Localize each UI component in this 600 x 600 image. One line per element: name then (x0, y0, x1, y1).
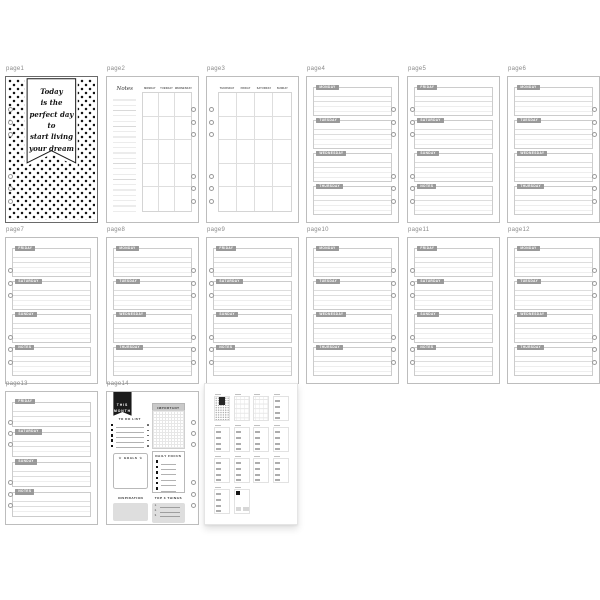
mini-page-label (274, 456, 280, 457)
week-section: TUESDAY (313, 118, 391, 149)
end-dot (147, 440, 149, 442)
grid-cell (255, 117, 273, 140)
mini-page-thumbnail (253, 427, 269, 452)
day-tab: THURSDAY (517, 184, 544, 189)
ruled-lines (414, 153, 492, 181)
grid-cell (237, 187, 255, 210)
page2-sheet: NotesMONDAYTUESDAYWEDNESDAY (106, 76, 199, 223)
binder-hole (592, 268, 597, 273)
grid-cell (175, 117, 191, 140)
day-tab: SUNDAY (417, 312, 439, 317)
goals-label: GOALS (124, 456, 138, 460)
page-label: page8 (107, 227, 125, 233)
page5-sheet: FRIDAYSATURDAYSUNDAYNOTES (407, 76, 500, 223)
mini-day-tab (216, 462, 221, 464)
binder-hole (8, 360, 13, 365)
grid-cell (219, 140, 237, 163)
mini-page-label (235, 487, 241, 488)
binder-hole (191, 442, 196, 447)
mini-day-tab (216, 493, 221, 495)
binder-hole (592, 335, 597, 340)
week-section: WEDNESDAY (313, 312, 391, 343)
mini-month-banner (236, 491, 240, 495)
ruled-lines (113, 95, 136, 211)
day-tab: SATURDAY (216, 279, 242, 284)
day-tab: NOTES (417, 345, 436, 350)
mini-day-tab (255, 448, 260, 450)
grid-cell (143, 93, 159, 116)
day-tab: WEDNESDAY (517, 312, 547, 317)
mini-day-tab (275, 462, 280, 464)
mini-day-tab (236, 437, 241, 439)
week-section: NOTES (12, 345, 90, 376)
ruled-lines (414, 347, 492, 375)
week-section: SATURDAY (414, 118, 492, 149)
binder-hole (592, 347, 597, 352)
mini-page-thumbnail (234, 489, 250, 514)
week-section: WEDNESDAY (514, 312, 592, 343)
week-sections: MONDAYTUESDAYWEDNESDAYTHURSDAY (313, 246, 391, 376)
focus-row (155, 487, 183, 492)
ruled-lines (213, 347, 291, 375)
grid-cell (159, 187, 175, 210)
week-section: THURSDAY (113, 345, 191, 376)
ruled-lines (12, 248, 90, 276)
mini-cover-banner (219, 397, 224, 405)
week-section: TUESDAY (313, 279, 391, 310)
top3-row: 3. (155, 514, 183, 519)
day-tab: TUESDAY (116, 279, 140, 284)
day-tab: MONDAY (116, 246, 138, 251)
todo-list: TO DO LIST (110, 418, 150, 450)
ruled-lines (414, 120, 492, 148)
month-grid: THURSDAYFRIDAYSATURDAYSUNDAY (218, 86, 292, 211)
binder-hole (8, 420, 13, 425)
grid-cell (175, 187, 191, 210)
page-label: page10 (307, 227, 329, 233)
day-tab: WEDNESDAY (316, 312, 346, 317)
banner-text-line: is the (41, 97, 63, 108)
week-section: NOTES (12, 489, 90, 517)
day-tab: WEDNESDAY (116, 312, 146, 317)
inspiration-box (113, 503, 148, 521)
week-sections: MONDAYTUESDAYWEDNESDAYTHURSDAY (514, 85, 592, 215)
binder-hole (191, 107, 196, 112)
week-sections: MONDAYTUESDAYWEDNESDAYTHURSDAY (313, 85, 391, 215)
binder-hole (410, 281, 415, 286)
week-section: NOTES (414, 184, 492, 215)
checkbox-square (156, 482, 158, 484)
checkbox-square (156, 477, 158, 479)
mini-page-thumbnail (214, 396, 230, 421)
grid-cell (237, 164, 255, 187)
ruled-lines (213, 281, 291, 309)
mini-day-tab (255, 479, 260, 481)
day-tab: NOTES (15, 489, 34, 494)
ruled-lines (113, 314, 191, 342)
binder-hole (209, 107, 214, 112)
day-tab: SATURDAY (417, 279, 443, 284)
checkbox-square (156, 471, 158, 473)
page14-sheet: THISMONTHTO DO LISTIMPORTANT☆GOALS☆DAILY… (106, 391, 199, 525)
week-section: SUNDAY (414, 312, 492, 343)
binder-hole (592, 120, 597, 125)
checkbox-square (111, 445, 113, 447)
ruled-lines (313, 153, 391, 181)
grid-cell (255, 93, 273, 116)
page-label: page4 (307, 66, 325, 72)
day-tab: TUESDAY (517, 279, 541, 284)
ruled-lines (514, 248, 592, 276)
binder-hole (191, 174, 196, 179)
mini-day-tab (236, 431, 241, 433)
binder-hole (391, 199, 396, 204)
mini-day-tab (236, 479, 241, 481)
binder-hole (8, 431, 13, 436)
week-section: SATURDAY (213, 279, 291, 310)
inspiration-label: INSPIRATION (113, 497, 148, 500)
week-section: TUESDAY (514, 118, 592, 149)
top3-label: TOP 3 THINGS (152, 497, 186, 500)
planner-pages-listing: page1Todayis theperfect daytostart livin… (0, 0, 600, 600)
binder-hole (391, 120, 396, 125)
binder-hole (8, 492, 13, 497)
binder-hole (191, 431, 196, 436)
binder-hole (191, 492, 196, 497)
daily-focus-title: DAILY FOCUS (153, 455, 185, 458)
ruled-lines (113, 281, 191, 309)
grid-cell (175, 93, 191, 116)
day-tab: FRIDAY (417, 246, 437, 251)
binder-hole (410, 199, 415, 204)
day-tab: SUNDAY (15, 459, 37, 464)
grid-cell (237, 117, 255, 140)
focus-rows (153, 460, 185, 492)
write-line (160, 516, 181, 517)
binder-hole (209, 360, 214, 365)
ruled-lines (414, 248, 492, 276)
week-sections: FRIDAYSATURDAYSUNDAYNOTES (414, 85, 492, 215)
grid-cell (237, 93, 255, 116)
page3-sheet: THURSDAYFRIDAYSATURDAYSUNDAY (206, 76, 299, 223)
grid-cell (159, 164, 175, 187)
page-label: page2 (107, 66, 125, 72)
binder-hole (391, 347, 396, 352)
page10-sheet: MONDAYTUESDAYWEDNESDAYTHURSDAY (306, 237, 399, 384)
grid-cell (175, 164, 191, 187)
grid-cell (143, 187, 159, 210)
mini-page-label (274, 394, 280, 395)
ruled-lines (414, 281, 492, 309)
ruled-lines (514, 314, 592, 342)
binder-hole (592, 107, 597, 112)
grid-cell (255, 164, 273, 187)
grid-cell (143, 117, 159, 140)
week-section: MONDAY (514, 85, 592, 116)
goals-box: ☆GOALS☆ (113, 453, 148, 489)
grid-cell (143, 164, 159, 187)
ruled-lines (113, 347, 191, 375)
week-sections: MONDAYTUESDAYWEDNESDAYTHURSDAY (113, 246, 191, 376)
ruled-lines (414, 87, 492, 115)
week-section: TUESDAY (514, 279, 592, 310)
end-dot (147, 430, 149, 432)
binder-hole (8, 503, 13, 508)
checkbox-square (156, 487, 158, 489)
binder-hole (209, 281, 214, 286)
binder-hole (391, 360, 396, 365)
checkbox-square (111, 429, 113, 431)
binder-hole (391, 293, 396, 298)
mini-page-thumbnail (273, 458, 289, 483)
binder-hole (8, 120, 13, 125)
mini-gray-box (243, 507, 249, 511)
ruled-lines (414, 314, 492, 342)
week-section: SUNDAY (213, 312, 291, 343)
mini-page-thumbnail (234, 458, 250, 483)
mini-page-thumbnail (234, 427, 250, 452)
grid-cell (273, 93, 291, 116)
week-section: SATURDAY (12, 429, 90, 457)
binder-hole (8, 199, 13, 204)
mini-page-thumbnail (273, 427, 289, 452)
grid-cell (273, 117, 291, 140)
page-label: page6 (508, 66, 526, 72)
ruled-lines (113, 248, 191, 276)
binder-hole (209, 186, 214, 191)
mini-gray-box (236, 507, 242, 511)
end-dot (147, 445, 149, 447)
day-tab: SATURDAY (417, 118, 443, 123)
mini-page-label (254, 394, 260, 395)
binder-hole (209, 132, 214, 137)
day-tab: TUESDAY (316, 279, 340, 284)
binder-hole (191, 347, 196, 352)
binder-hole (391, 174, 396, 179)
week-section: SUNDAY (12, 312, 90, 343)
week-section: NOTES (213, 345, 291, 376)
checkbox-square (156, 466, 158, 468)
mini-page-label (235, 456, 241, 457)
ruled-lines (313, 281, 391, 309)
binder-hole (391, 281, 396, 286)
ruled-lines (514, 281, 592, 309)
mini-day-tab (275, 448, 280, 450)
ruled-lines (514, 120, 592, 148)
day-tab: MONDAY (316, 246, 338, 251)
banner-word: MONTH (114, 409, 131, 415)
binder-hole (391, 107, 396, 112)
binder-hole (191, 268, 196, 273)
ruled-lines (514, 153, 592, 181)
ruled-lines (213, 248, 291, 276)
page-label: page9 (207, 227, 225, 233)
day-tab: FRIDAY (15, 399, 35, 404)
mini-day-tab (255, 437, 260, 439)
ruled-lines (12, 281, 90, 309)
mini-page-label (235, 394, 241, 395)
day-tab: MONDAY (517, 246, 539, 251)
week-section: FRIDAY (213, 246, 291, 277)
grid-cell (175, 140, 191, 163)
end-dot (147, 424, 149, 426)
day-tab: WEDNESDAY (316, 151, 346, 156)
page-label: page14 (107, 381, 129, 387)
mini-day-tab (216, 505, 221, 507)
day-tab: NOTES (417, 184, 436, 189)
grid-cell (219, 187, 237, 210)
week-section: SATURDAY (12, 279, 90, 310)
page-label: page5 (408, 66, 426, 72)
mini-day-tab (216, 499, 221, 501)
binder-hole (191, 420, 196, 425)
top3-number: 2. (155, 509, 157, 512)
ruled-lines (313, 248, 391, 276)
binder-hole (410, 360, 415, 365)
mini-day-tab (275, 400, 280, 402)
ruled-lines (313, 314, 391, 342)
checkbox-square (111, 439, 113, 441)
day-tab: SATURDAY (15, 279, 41, 284)
notes-header: Notes (113, 86, 136, 94)
todo-title: TO DO LIST (110, 418, 150, 421)
star-icon: ☆ (119, 456, 122, 460)
page-label: page7 (6, 227, 24, 233)
day-tab: FRIDAY (417, 85, 437, 90)
week-section: MONDAY (514, 246, 592, 277)
page12-sheet: MONDAYTUESDAYWEDNESDAYTHURSDAY (507, 237, 600, 384)
mini-day-tab (255, 462, 260, 464)
ruled-lines (414, 186, 492, 214)
week-section: NOTES (414, 345, 492, 376)
banner-text: Todayis theperfect daytostart livingyour… (25, 77, 78, 167)
binder-hole (391, 268, 396, 273)
grid-cell (255, 187, 273, 210)
binder-hole (391, 132, 396, 137)
day-tab: MONDAY (316, 85, 338, 90)
mini-day-tab (255, 474, 260, 476)
page1-sheet: Todayis theperfect daytostart livingyour… (5, 76, 98, 223)
day-tab: SATURDAY (15, 429, 41, 434)
page-label: page1 (6, 66, 24, 72)
day-tab: THURSDAY (316, 345, 343, 350)
ruled-lines (514, 186, 592, 214)
mini-grid (214, 396, 289, 514)
checkbox-square (111, 434, 113, 436)
star-icon: ☆ (139, 456, 142, 460)
mini-day-tab (255, 431, 260, 433)
grid-cell (219, 93, 237, 116)
day-tab: MONDAY (517, 85, 539, 90)
mini-page-thumbnail (234, 396, 250, 421)
top3-box: 1.2.3. (152, 503, 186, 523)
binder-hole (592, 293, 597, 298)
mini-day-tab (236, 474, 241, 476)
mini-day-tab (216, 468, 221, 470)
mini-day-tab (275, 412, 280, 414)
week-section: WEDNESDAY (113, 312, 191, 343)
mini-day-tab (216, 437, 221, 439)
important-box: IMPORTANT (152, 403, 186, 449)
week-sections: MONDAYTUESDAYWEDNESDAYTHURSDAY (514, 246, 592, 376)
ruled-lines (313, 120, 391, 148)
ruled-lines (313, 87, 391, 115)
grid-cell (255, 140, 273, 163)
binder-hole (592, 199, 597, 204)
binder-hole (592, 186, 597, 191)
ruled-lines (12, 462, 90, 488)
write-line (116, 447, 144, 448)
binder-hole (191, 120, 196, 125)
grid-cell (143, 140, 159, 163)
week-section: THURSDAY (514, 345, 592, 376)
overview-sheet (204, 383, 298, 525)
week-sections: FRIDAYSATURDAYSUNDAYNOTES (213, 246, 291, 376)
week-section: SUNDAY (414, 151, 492, 182)
day-tab: WEDNESDAY (517, 151, 547, 156)
binder-hole (191, 199, 196, 204)
binder-hole (191, 186, 196, 191)
ruled-lines (313, 347, 391, 375)
banner-text-line: your dream (29, 143, 74, 154)
week-section: WEDNESDAY (313, 151, 391, 182)
day-tab: THURSDAY (316, 184, 343, 189)
binder-hole (592, 174, 597, 179)
mini-page-label (235, 425, 241, 426)
day-tab: FRIDAY (216, 246, 236, 251)
week-section: THURSDAY (313, 345, 391, 376)
mini-page-thumbnail (214, 427, 230, 452)
month-grid-body (218, 92, 292, 211)
todo-rows (110, 423, 150, 449)
top3-number: 1. (155, 504, 157, 507)
mini-day-tab (236, 443, 241, 445)
binder-hole (410, 120, 415, 125)
binder-hole (191, 503, 196, 508)
mini-page-thumbnail (253, 458, 269, 483)
mini-day-tab (236, 448, 241, 450)
binder-hole (592, 132, 597, 137)
ruled-lines (213, 314, 291, 342)
grid-cell (219, 164, 237, 187)
mini-day-tab (275, 479, 280, 481)
mini-day-tab (216, 448, 221, 450)
week-sections: FRIDAYSATURDAYSUNDAYNOTES (12, 246, 90, 376)
week-section: MONDAY (313, 85, 391, 116)
page4-sheet: MONDAYTUESDAYWEDNESDAYTHURSDAY (306, 76, 399, 223)
day-tab: NOTES (15, 345, 34, 350)
grid-paper (152, 410, 186, 449)
mini-day-tab (216, 479, 221, 481)
mini-day-tab (275, 406, 280, 408)
mini-day-tab (236, 462, 241, 464)
month-grid: MONDAYTUESDAYWEDNESDAY (142, 86, 192, 211)
week-section: MONDAY (313, 246, 391, 277)
binder-hole (391, 335, 396, 340)
mini-day-tab (216, 443, 221, 445)
banner-text-line: start living (30, 131, 73, 142)
binder-hole (209, 199, 214, 204)
day-tab: SUNDAY (216, 312, 238, 317)
mini-day-tab (216, 474, 221, 476)
mini-page-label (254, 456, 260, 457)
mini-day-tab (216, 510, 221, 512)
binder-hole (191, 132, 196, 137)
mini-page-thumbnail (214, 458, 230, 483)
day-tab: FRIDAY (15, 246, 35, 251)
grid-cell (273, 140, 291, 163)
mini-day-tab (236, 468, 241, 470)
